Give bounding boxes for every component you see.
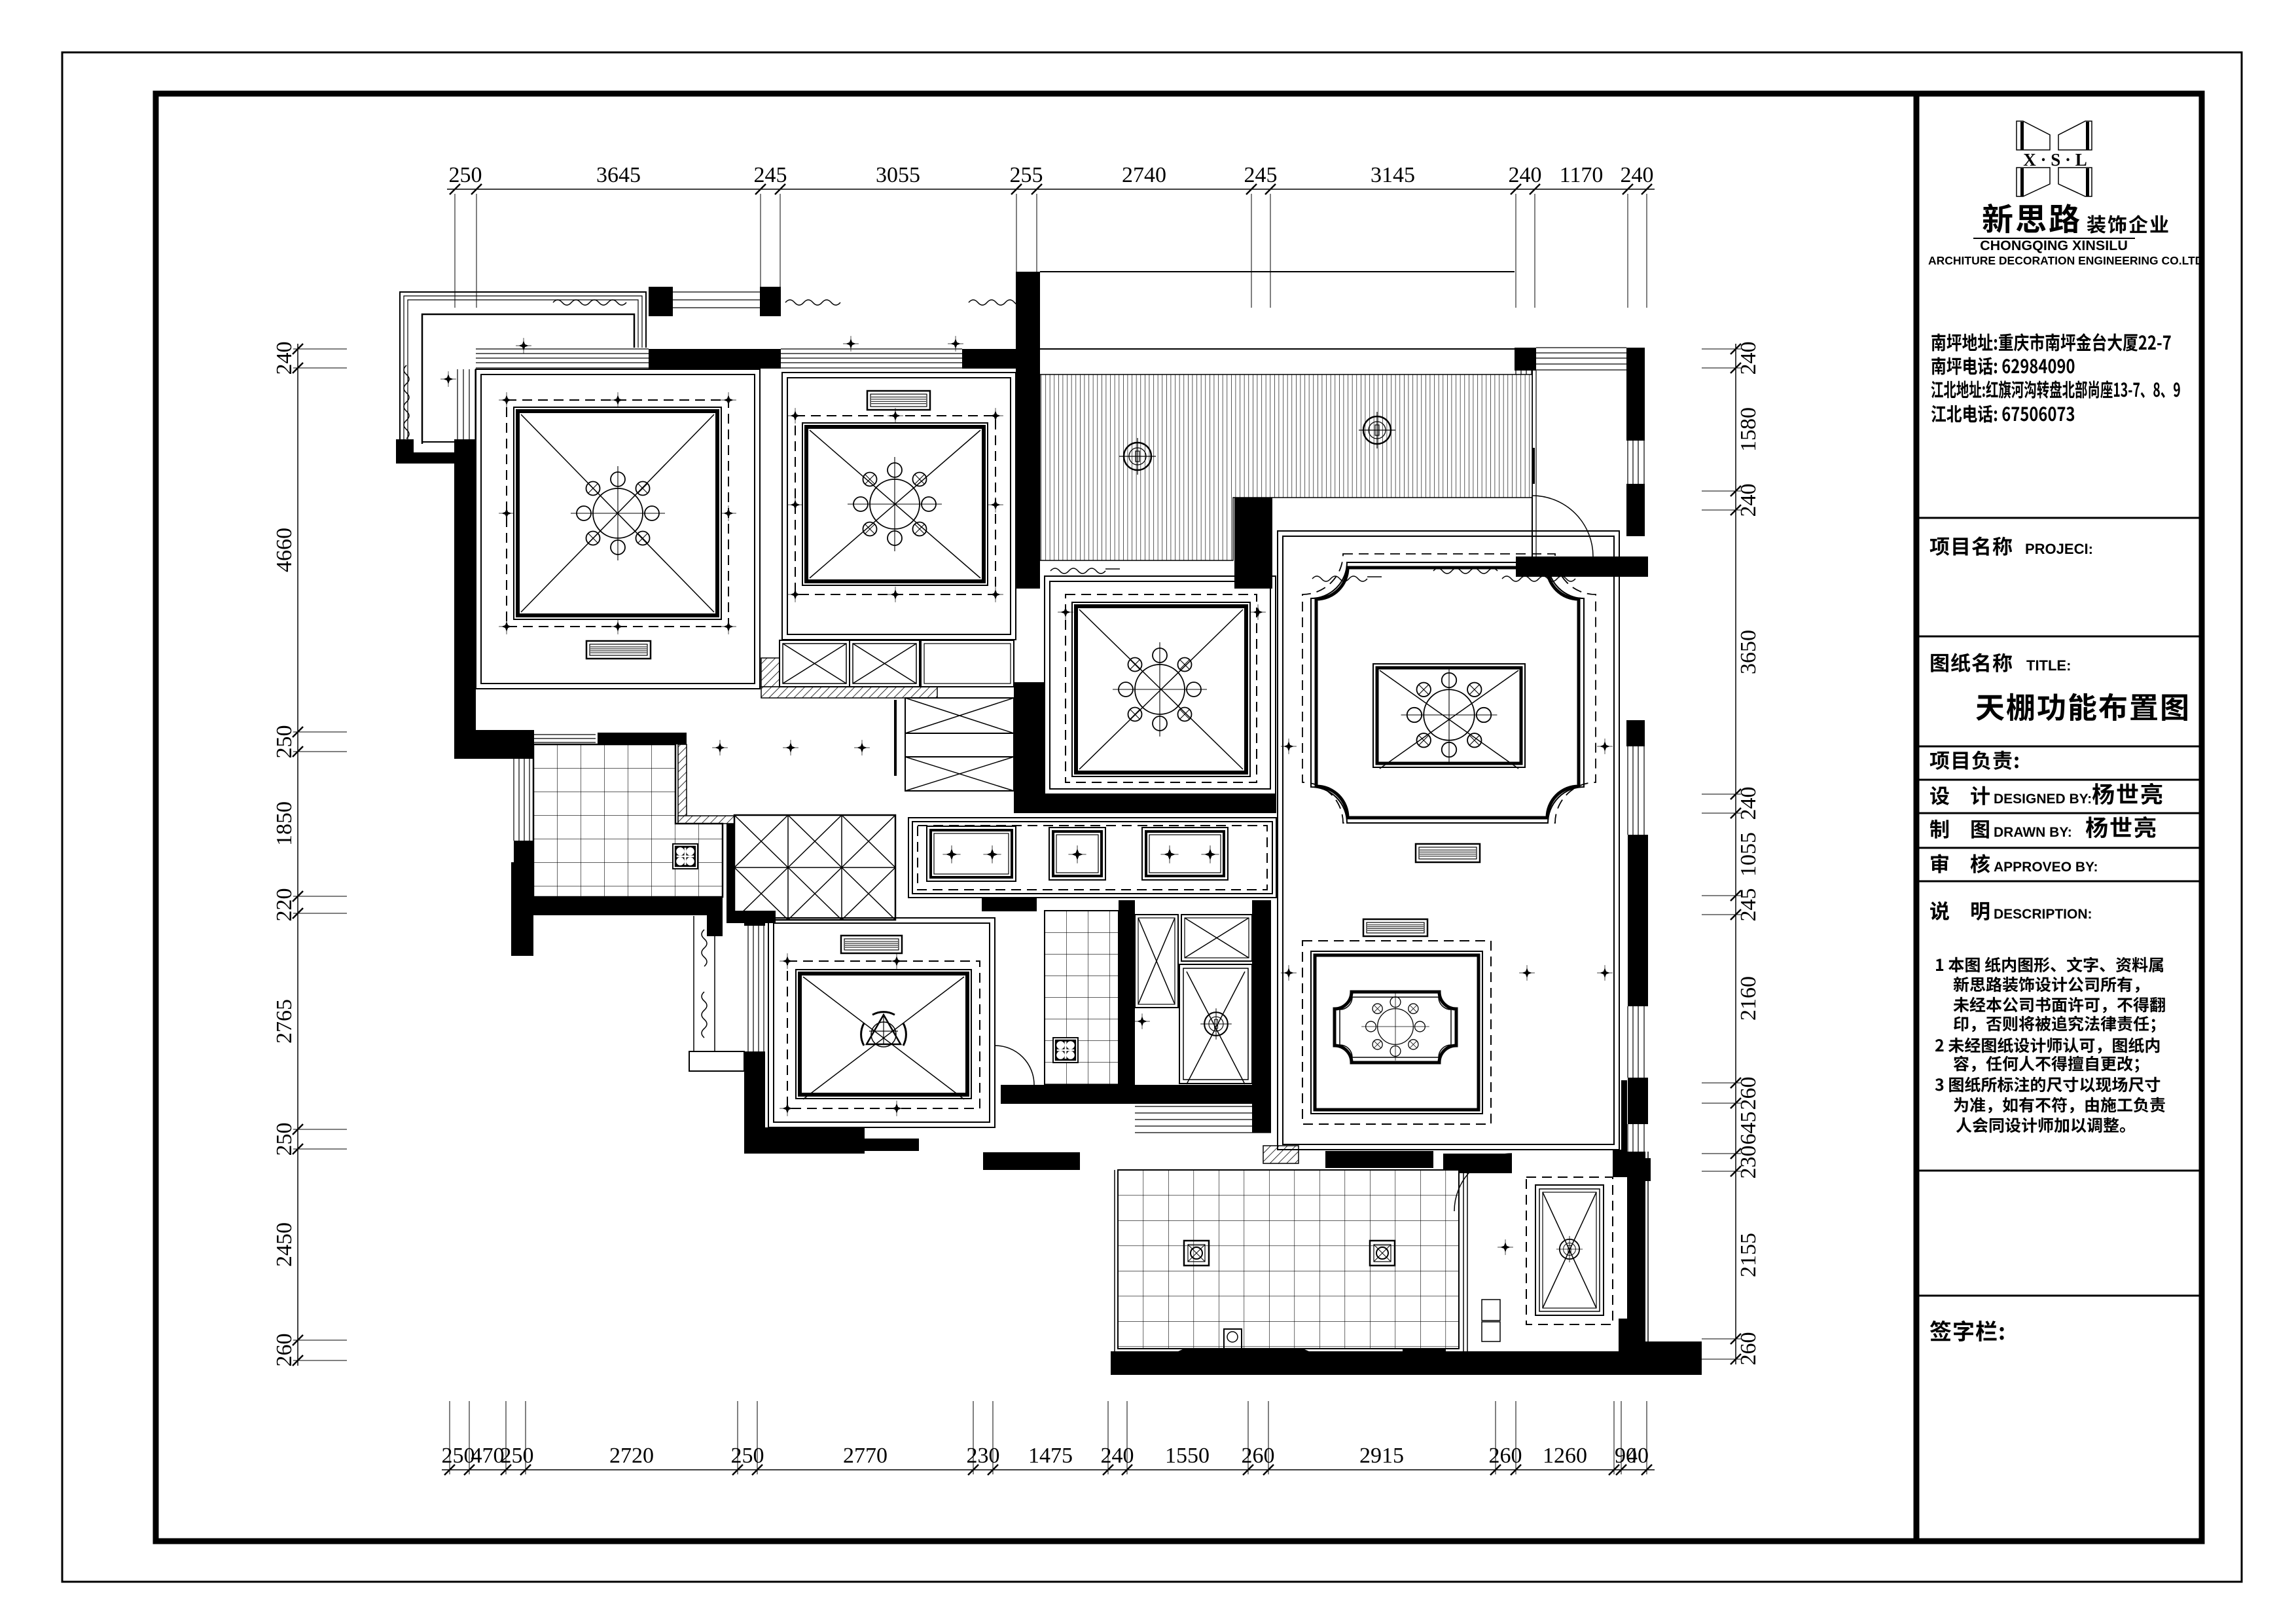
svg-text:1475: 1475 <box>1028 1444 1073 1468</box>
svg-text:2740: 2740 <box>1122 163 1166 187</box>
svg-text:240: 240 <box>1101 1444 1134 1468</box>
svg-text:230: 230 <box>967 1444 1000 1468</box>
svg-text:645: 645 <box>1736 1112 1761 1145</box>
svg-text:1580: 1580 <box>1736 407 1761 452</box>
svg-text:250: 250 <box>731 1444 764 1468</box>
svg-text:250: 250 <box>272 725 296 759</box>
svg-text:DESIGNED BY:: DESIGNED BY: <box>1994 792 2092 807</box>
svg-text:TITLE:: TITLE: <box>2026 657 2071 674</box>
svg-text:260: 260 <box>1489 1444 1522 1468</box>
svg-text:3145: 3145 <box>1371 163 1415 187</box>
svg-text:250: 250 <box>272 1123 296 1156</box>
svg-text:40: 40 <box>1626 1444 1649 1468</box>
svg-text:3055: 3055 <box>876 163 920 187</box>
svg-text:240: 240 <box>1509 163 1542 187</box>
svg-text:250: 250 <box>449 163 482 187</box>
svg-text:ARCHITURE DECORATION ENGINEERI: ARCHITURE DECORATION ENGINEERING CO.LTD <box>1928 254 2203 267</box>
svg-text:DRAWN BY:: DRAWN BY: <box>1994 825 2072 840</box>
svg-text:2915: 2915 <box>1359 1444 1404 1468</box>
svg-text:1550: 1550 <box>1165 1444 1210 1468</box>
svg-text:260: 260 <box>1736 1077 1761 1110</box>
svg-text:2155: 2155 <box>1736 1233 1761 1277</box>
svg-text:220: 220 <box>272 888 296 922</box>
svg-text:240: 240 <box>272 342 296 375</box>
svg-text:4660: 4660 <box>272 528 296 572</box>
svg-text:1850: 1850 <box>272 801 296 846</box>
svg-text:PROJECI:: PROJECI: <box>2025 541 2093 557</box>
svg-text:3650: 3650 <box>1736 630 1761 674</box>
svg-text:1170: 1170 <box>1560 163 1604 187</box>
svg-text:DESCRIPTION:: DESCRIPTION: <box>1994 907 2092 922</box>
svg-text:245: 245 <box>1244 163 1278 187</box>
svg-text:250: 250 <box>501 1444 534 1468</box>
svg-text:X · S · L: X · S · L <box>2023 150 2087 170</box>
svg-text:250: 250 <box>442 1444 475 1468</box>
svg-text:260: 260 <box>1736 1332 1761 1366</box>
svg-text:240: 240 <box>1736 787 1761 820</box>
svg-text:2765: 2765 <box>272 999 296 1044</box>
svg-text:1055: 1055 <box>1736 832 1761 877</box>
svg-text:2160: 2160 <box>1736 976 1761 1021</box>
svg-text:2720: 2720 <box>609 1444 654 1468</box>
svg-text:2450: 2450 <box>272 1222 296 1267</box>
svg-text:230: 230 <box>1736 1146 1761 1179</box>
svg-text:260: 260 <box>1242 1444 1275 1468</box>
svg-text:255: 255 <box>1010 163 1043 187</box>
svg-text:470: 470 <box>471 1444 505 1468</box>
svg-text:CHONGQING XINSILU: CHONGQING XINSILU <box>1980 238 2128 253</box>
svg-text:3645: 3645 <box>596 163 641 187</box>
svg-text:245: 245 <box>1736 888 1761 922</box>
svg-text:245: 245 <box>754 163 787 187</box>
svg-text:APPROVEO BY:: APPROVEO BY: <box>1994 860 2098 875</box>
svg-text:1260: 1260 <box>1543 1444 1587 1468</box>
svg-text:240: 240 <box>1736 342 1761 375</box>
svg-text:2770: 2770 <box>843 1444 888 1468</box>
svg-text:240: 240 <box>1736 484 1761 517</box>
svg-text:260: 260 <box>272 1334 296 1367</box>
svg-text:240: 240 <box>1621 163 1654 187</box>
